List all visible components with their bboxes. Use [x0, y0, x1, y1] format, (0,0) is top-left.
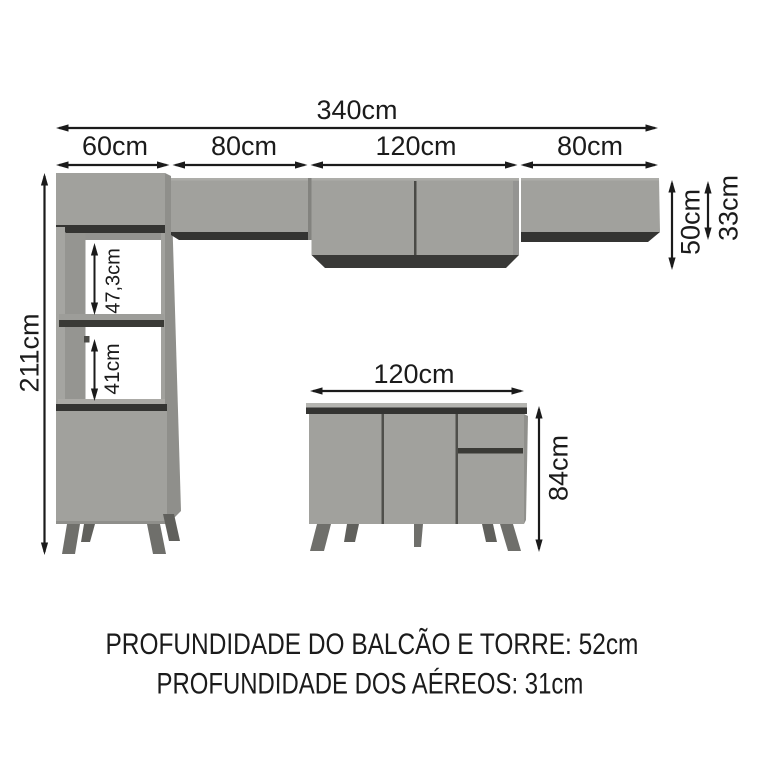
svg-text:120cm: 120cm — [375, 131, 456, 161]
svg-text:211cm: 211cm — [15, 313, 45, 392]
svg-text:50cm: 50cm — [676, 189, 706, 255]
svg-text:120cm: 120cm — [373, 359, 454, 389]
svg-text:47,3cm: 47,3cm — [103, 248, 125, 314]
svg-text:60cm: 60cm — [82, 131, 148, 161]
svg-text:PROFUNDIDADE DOS AÉREOS: 31cm: PROFUNDIDADE DOS AÉREOS: 31cm — [157, 666, 584, 700]
svg-text:PROFUNDIDADE DO BALCÃO E TORRE: PROFUNDIDADE DO BALCÃO E TORRE: 52cm — [106, 627, 639, 661]
svg-text:41cm: 41cm — [101, 343, 124, 394]
svg-text:84cm: 84cm — [544, 435, 574, 501]
svg-text:340cm: 340cm — [316, 95, 397, 125]
svg-text:80cm: 80cm — [557, 131, 623, 161]
svg-text:80cm: 80cm — [211, 131, 277, 161]
svg-text:33cm: 33cm — [714, 175, 744, 241]
